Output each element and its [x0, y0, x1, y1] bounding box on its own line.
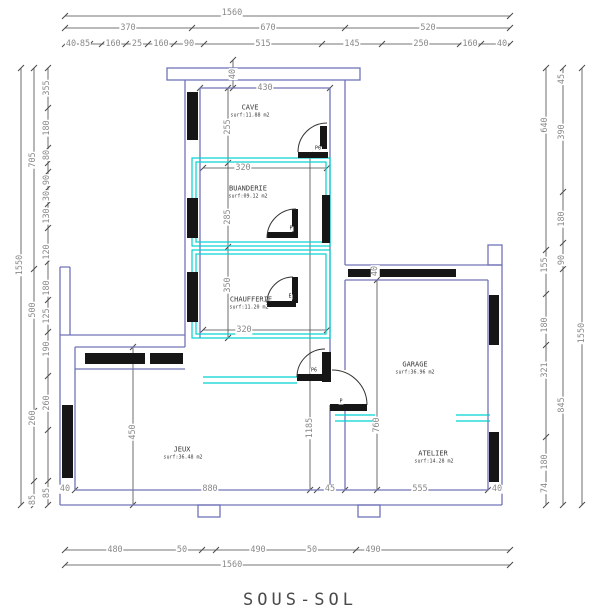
dim-label: 40 — [491, 485, 503, 494]
door-tag-chaufferie: E — [287, 295, 292, 300]
dim-label: 480 — [106, 546, 123, 555]
door-tag-cave: P6 — [314, 147, 322, 152]
room-label-garage: GARAGE — [402, 362, 427, 369]
room-surface-chaufferie: surf:11.20 m2 — [229, 306, 268, 311]
floorplan-drawing — [0, 0, 600, 613]
dim-label: 50 — [176, 546, 188, 555]
room-surface-atelier: surf:14.28 m2 — [414, 460, 453, 465]
dim-label: 90 — [558, 254, 567, 266]
footing-tab-right — [358, 505, 380, 517]
dim-label: 320 — [235, 326, 252, 335]
room-surface-buanderie: surf:09.12 m2 — [228, 195, 267, 200]
dim-label: 255 — [224, 118, 233, 135]
dim-label: 321 — [541, 361, 550, 378]
dim-label: 25 — [131, 40, 143, 49]
dim-label: 180 — [541, 453, 550, 470]
dim-label: 90 — [183, 40, 195, 49]
dim-label: 40 — [371, 265, 380, 277]
drawing-title: SOUS-SOL — [0, 590, 600, 610]
door-tag-garage: P — [338, 400, 343, 405]
dim-label: 50 — [306, 546, 318, 555]
dim-label: 705 — [29, 151, 38, 168]
dim-label: 1560 — [221, 9, 243, 18]
window-block — [187, 92, 198, 140]
dim-label: 355 — [43, 79, 52, 96]
room-label-atelier: ATELIER — [418, 451, 448, 458]
dim-label: 760 — [373, 416, 382, 433]
dim-label: 490 — [364, 546, 381, 555]
bottom-wall — [60, 490, 502, 505]
dim-label: 180 — [43, 119, 52, 136]
room-label-chaufferie: CHAUFFERIE — [230, 297, 272, 304]
dim-label: 40 — [496, 40, 508, 49]
dim-label: 1560 — [221, 561, 243, 570]
dim-label: 1185 — [306, 417, 315, 439]
room-label-buanderie: BUANDERIE — [229, 186, 267, 193]
buanderie-partition — [192, 158, 330, 246]
dim-label: 130 — [43, 207, 52, 224]
room-surface-cave: surf:11.88 m2 — [230, 114, 269, 119]
dim-label: 40 — [59, 485, 71, 494]
dim-label: 500 — [29, 301, 38, 318]
dim-label: 45 — [324, 485, 336, 494]
door-swing-arcs — [267, 123, 367, 405]
dim-label: 85 — [79, 40, 91, 49]
dim-label: 670 — [259, 24, 276, 33]
room-label-jeux: JEUX — [174, 447, 191, 454]
room-surface-garage: surf:36.96 m2 — [395, 371, 434, 376]
dim-label: 74 — [541, 482, 550, 494]
door-leaf — [297, 374, 325, 381]
dim-label: 845 — [558, 396, 567, 413]
door-tag-buanderie: P — [288, 227, 293, 232]
wall-segment — [322, 195, 330, 243]
jeux-partition — [203, 377, 297, 383]
dim-label: 160 — [152, 40, 169, 49]
dim-label: 490 — [249, 546, 266, 555]
dim-label: 320 — [234, 164, 251, 173]
dim-label: 1550 — [16, 254, 25, 276]
dim-label: 515 — [254, 40, 271, 49]
dim-label: 120 — [43, 243, 52, 260]
window-block — [489, 295, 499, 345]
dim-label: 85 — [29, 494, 38, 506]
dim-label: 80 — [43, 149, 52, 161]
dim-label: 555 — [411, 485, 428, 494]
door-tag-jeux: P6 — [310, 369, 318, 374]
door-leaf — [330, 404, 367, 411]
window-block — [150, 353, 183, 364]
right-stub-wall — [488, 245, 502, 265]
room-surface-jeux: surf:36.48 m2 — [163, 456, 202, 461]
strip-right-wall — [330, 80, 345, 490]
dim-label: 40 — [65, 40, 77, 49]
floorplan-canvas: 1560 370 670 520 40 85 160 25 160 90 515… — [0, 0, 600, 613]
dim-label: 350 — [224, 276, 233, 293]
wall-segment — [322, 352, 331, 382]
chaufferie-partition — [192, 250, 330, 338]
window-block — [489, 432, 499, 482]
garage-door-arc — [332, 370, 367, 405]
window-block — [85, 353, 145, 364]
room-label-cave: CAVE — [242, 105, 259, 112]
dim-label: 90 — [43, 174, 52, 186]
garage-atelier-partition-left — [335, 415, 375, 421]
jeux-left-stub — [60, 267, 70, 335]
dim-label: 430 — [256, 84, 273, 93]
window-block — [187, 198, 198, 238]
garage-door-lintel — [348, 269, 456, 277]
dim-label: 180 — [541, 316, 550, 333]
door-threshold — [298, 152, 328, 158]
dim-label: 250 — [412, 40, 429, 49]
dim-label: 520 — [419, 24, 436, 33]
dim-label: 145 — [343, 40, 360, 49]
dim-label: 125 — [43, 307, 52, 324]
dim-label: 190 — [43, 340, 52, 357]
window-door-blocks — [62, 92, 499, 482]
dim-label: 640 — [541, 116, 550, 133]
dim-label: 180 — [43, 279, 52, 296]
dim-label: 45 — [558, 73, 567, 85]
dim-label: 160 — [104, 40, 121, 49]
dim-label: 260 — [43, 394, 52, 411]
top-cap-wall — [167, 68, 360, 80]
door-leaf — [292, 277, 298, 303]
dim-label: 30 — [43, 190, 52, 202]
chaufferie-partition-inner — [196, 254, 326, 334]
dim-label: 390 — [558, 123, 567, 140]
garage-atelier-partition-right — [456, 415, 490, 421]
buanderie-partition-inner — [196, 162, 326, 242]
dim-label: 85 — [43, 487, 52, 499]
dim-label: 155 — [541, 256, 550, 273]
dim-label: 880 — [201, 485, 218, 494]
footing-tab-left — [198, 505, 220, 517]
dim-label: 285 — [224, 208, 233, 225]
dim-label: 450 — [129, 423, 138, 440]
dim-label: 260 — [29, 409, 38, 426]
dim-label: 1550 — [578, 322, 587, 344]
window-block — [187, 272, 198, 322]
dim-label: 40 — [229, 68, 238, 80]
dim-label: 180 — [558, 210, 567, 227]
dim-label: 370 — [119, 24, 136, 33]
dim-label: 160 — [461, 40, 478, 49]
window-block — [62, 405, 73, 478]
dimension-lines — [21, 16, 582, 565]
